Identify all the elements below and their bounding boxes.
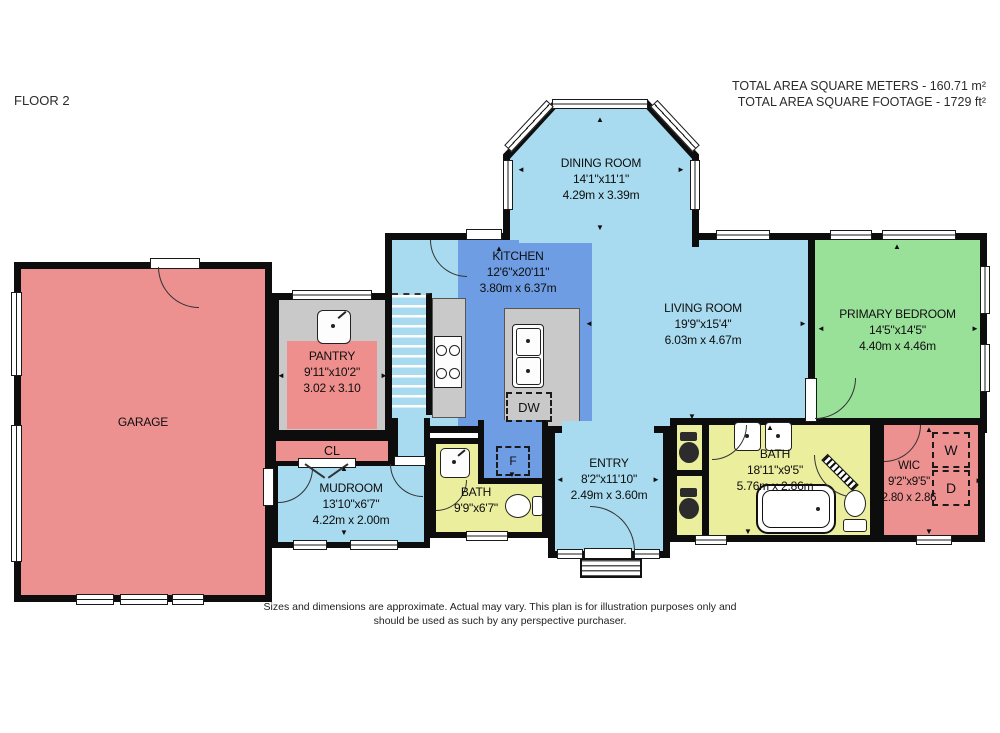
dim-arrow-up-icon: ▲ xyxy=(596,116,604,124)
dim-arrow-right-icon: ► xyxy=(971,325,979,333)
entry-steps xyxy=(580,558,642,578)
room-name: WIC xyxy=(876,458,942,474)
stove-icon xyxy=(434,336,462,388)
closet-label: CL xyxy=(324,444,340,458)
small-bath-label: BATH 9'9"x6'7" xyxy=(436,484,516,516)
dining-opening xyxy=(519,231,681,243)
kitchen-sink-icon xyxy=(512,324,544,388)
dim-arrow-down-icon: ▼ xyxy=(893,418,901,426)
total-area-block: TOTAL AREA SQUARE METERS - 160.71 m² TOT… xyxy=(732,78,986,110)
room-name: KITCHEN xyxy=(432,248,604,264)
dim-arrow-down-icon: ▼ xyxy=(688,413,696,421)
room-dim-m: 4.40m x 4.46m xyxy=(815,338,980,354)
living-window-top xyxy=(716,230,770,240)
room-dim-ft: 14'1"x11'1" xyxy=(511,171,691,187)
small-bath-window-bottom xyxy=(466,531,508,541)
kitchen-door-leaf xyxy=(466,229,502,240)
dim-arrow-up-icon: ▲ xyxy=(766,424,774,432)
garage-window-left-1 xyxy=(11,292,22,376)
small-bath-sink-icon xyxy=(440,448,470,478)
room-dim-ft: 9'2"x9'5" xyxy=(876,474,942,490)
room-name: MUDROOM xyxy=(272,480,430,496)
dim-arrow-left-icon: ◄ xyxy=(277,372,285,380)
room-dim-ft: 9'9"x6'7" xyxy=(436,500,516,516)
room-dim-ft: 9'11"x10'2" xyxy=(282,364,382,380)
bedroom-window-right-2 xyxy=(980,344,990,392)
room-name: PRIMARY BEDROOM xyxy=(815,306,980,322)
living-room-label: LIVING ROOM 19'9"x15'4" 6.03m x 4.67m xyxy=(612,300,794,348)
total-area-metric: TOTAL AREA SQUARE METERS - 160.71 m² xyxy=(732,78,986,94)
dishwasher-label: DW xyxy=(518,400,540,415)
room-name: ENTRY xyxy=(548,455,670,471)
room-dim-m: 6.03m x 4.67m xyxy=(612,332,794,348)
main-bath-label: BATH 18'11"x9'5" 5.76m x 2.86m xyxy=(700,446,850,494)
dim-arrow-down-icon: ▼ xyxy=(340,529,348,537)
dim-arrow-up-icon: ▲ xyxy=(925,426,933,434)
mudroom-label: MUDROOM 13'10"x6'7" 4.22m x 2.00m xyxy=(272,480,430,528)
fridge-label: F xyxy=(509,454,516,468)
room-name: BATH xyxy=(700,446,850,462)
garage-window-bottom-2 xyxy=(120,594,168,605)
room-dim-m: 3.02 x 3.10 xyxy=(282,380,382,396)
room-dim-m: 5.76m x 2.86m xyxy=(700,478,850,494)
main-bath-window-bottom xyxy=(695,535,727,545)
dining-window-right xyxy=(690,160,700,210)
burner-icon xyxy=(449,345,460,356)
dim-arrow-right-icon: ► xyxy=(652,476,660,484)
dim-arrow-up-icon: ▲ xyxy=(340,465,348,473)
dim-arrow-left-icon: ◄ xyxy=(585,320,593,328)
disclaimer-line-2: should be used as such by any perspectiv… xyxy=(0,615,1000,629)
main-toilet-icon xyxy=(842,490,868,532)
dim-arrow-right-icon: ► xyxy=(975,477,983,485)
garage-window-bottom-3 xyxy=(172,594,204,605)
dryer-label: D xyxy=(946,480,956,496)
wic-window-bottom xyxy=(916,535,952,545)
room-name: LIVING ROOM xyxy=(612,300,794,316)
staircase xyxy=(392,293,432,415)
room-dim-m: 3.80m x 6.37m xyxy=(432,280,604,296)
dim-arrow-down-icon: ▼ xyxy=(925,528,933,536)
room-dim-ft: 14'5"x14'5" xyxy=(815,322,980,338)
burner-icon xyxy=(436,345,447,356)
room-name: DINING ROOM xyxy=(511,155,691,171)
dim-arrow-down-icon: ▼ xyxy=(744,528,752,536)
dim-arrow-down-icon: ▼ xyxy=(508,471,516,479)
mudroom-window-bottom-1 xyxy=(293,540,327,550)
kitchen-label: KITCHEN 12'6"x20'11" 3.80m x 6.37m xyxy=(432,248,604,296)
garage-label: GARAGE xyxy=(14,414,272,430)
burner-icon xyxy=(449,368,460,379)
dim-arrow-up-icon: ▲ xyxy=(495,245,503,253)
bedroom-window-top-2 xyxy=(882,230,956,240)
wc-toilet-icon xyxy=(679,432,699,464)
room-dim-m: 2.80 x 2.86 xyxy=(876,490,942,506)
room-dim-ft: 12'6"x20'11" xyxy=(432,264,604,280)
room-dim-ft: 13'10"x6'7" xyxy=(272,496,430,512)
floor-label: FLOOR 2 xyxy=(14,93,70,108)
burner-icon xyxy=(436,368,447,379)
dim-arrow-left-icon: ◄ xyxy=(872,477,880,485)
pantry-window-top xyxy=(292,290,372,300)
disclaimer: Sizes and dimensions are approximate. Ac… xyxy=(0,601,1000,628)
wic-label: WIC 9'2"x9'5" 2.80 x 2.86 xyxy=(876,458,942,506)
room-name: PANTRY xyxy=(282,348,382,364)
dim-arrow-right-icon: ► xyxy=(799,320,807,328)
room-dim-m: 4.29m x 3.39m xyxy=(511,187,691,203)
wc-toilet-icon xyxy=(679,488,699,520)
dim-arrow-left-icon: ◄ xyxy=(517,166,525,174)
garage-room xyxy=(14,262,272,602)
primary-bedroom-label: PRIMARY BEDROOM 14'5"x14'5" 4.40m x 4.46… xyxy=(815,306,980,354)
pantry-sink-icon xyxy=(317,310,351,344)
bedroom-window-right-1 xyxy=(980,266,990,314)
mudroom-window-bottom-2 xyxy=(350,540,398,550)
total-area-imperial: TOTAL AREA SQUARE FOOTAGE - 1729 ft² xyxy=(732,94,986,110)
room-dim-m: 4.22m x 2.00m xyxy=(272,512,430,528)
dim-arrow-down-icon: ▼ xyxy=(596,224,604,232)
dining-room-label: DINING ROOM 14'1"x11'1" 4.29m x 3.39m xyxy=(511,155,691,203)
bedroom-window-top-1 xyxy=(830,230,872,240)
pantry-label: PANTRY 9'11"x10'2" 3.02 x 3.10 xyxy=(282,348,382,396)
dim-arrow-left-icon: ◄ xyxy=(817,325,825,333)
dishwasher-box: DW xyxy=(506,392,552,422)
dim-arrow-right-icon: ► xyxy=(677,166,685,174)
dining-window-top xyxy=(552,99,648,109)
garage-window-bottom-1 xyxy=(76,594,114,605)
garage-window-left-2 xyxy=(11,425,22,562)
room-name: GARAGE xyxy=(14,414,272,430)
room-dim-ft: 19'9"x15'4" xyxy=(612,316,794,332)
room-name: BATH xyxy=(436,484,516,500)
dim-arrow-up-icon: ▲ xyxy=(893,243,901,251)
dim-arrow-left-icon: ◄ xyxy=(556,476,564,484)
washer-label: W xyxy=(944,442,957,458)
room-dim-ft: 18'11"x9'5" xyxy=(700,462,850,478)
dim-arrow-right-icon: ► xyxy=(380,372,388,380)
room-dim-m: 2.49m x 3.60m xyxy=(548,487,670,503)
entry-opening xyxy=(562,421,654,435)
